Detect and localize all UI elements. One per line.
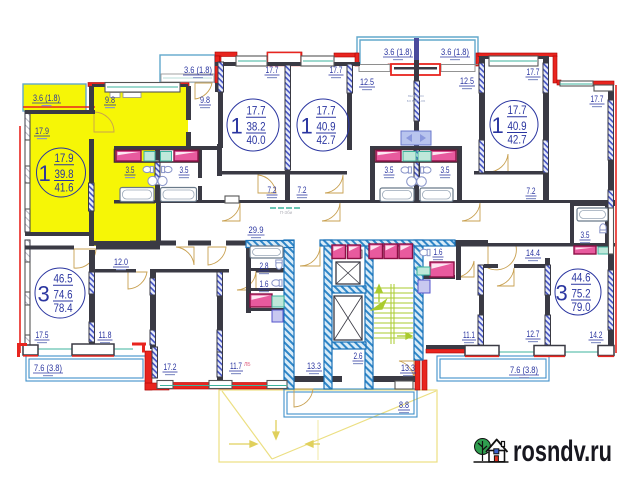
svg-text:9.8: 9.8 — [200, 95, 210, 105]
svg-text:1: 1 — [39, 161, 51, 186]
svg-text:2.6: 2.6 — [354, 351, 363, 361]
svg-text:1: 1 — [301, 114, 313, 139]
svg-text:17.7: 17.7 — [508, 105, 527, 117]
svg-text:3.5: 3.5 — [126, 165, 135, 175]
svg-text:74.6: 74.6 — [54, 290, 73, 302]
svg-text:ЛБ: ЛБ — [244, 362, 251, 368]
svg-text:29.9: 29.9 — [249, 225, 264, 235]
svg-text:8.8: 8.8 — [399, 400, 409, 410]
svg-text:7.6 (3.8): 7.6 (3.8) — [34, 363, 62, 373]
svg-text:3.5: 3.5 — [180, 165, 189, 175]
svg-text:1.6: 1.6 — [434, 247, 443, 257]
svg-text:42.7: 42.7 — [317, 135, 336, 147]
svg-text:79.0: 79.0 — [572, 302, 591, 314]
svg-text:13.3: 13.3 — [401, 363, 415, 373]
svg-text:12.5: 12.5 — [360, 77, 374, 87]
svg-text:2.8: 2.8 — [260, 261, 269, 271]
svg-text:3.6 (1.8): 3.6 (1.8) — [441, 47, 469, 57]
svg-text:12.5: 12.5 — [460, 76, 474, 86]
svg-text:17.2: 17.2 — [164, 362, 177, 372]
svg-text:78.4: 78.4 — [54, 303, 74, 315]
svg-text:40.9: 40.9 — [508, 121, 527, 133]
svg-text:7.2: 7.2 — [298, 185, 307, 195]
svg-text:7.2: 7.2 — [268, 185, 277, 195]
svg-text:ВЕНТБЛОК: ВЕНТБЛОК — [408, 94, 424, 98]
svg-text:3.6 (1.8): 3.6 (1.8) — [33, 93, 60, 103]
svg-text:12.7: 12.7 — [527, 329, 540, 339]
svg-text:17.7: 17.7 — [591, 94, 604, 104]
svg-text:42.7: 42.7 — [508, 135, 527, 147]
svg-text:3: 3 — [38, 282, 50, 307]
svg-text:12.0: 12.0 — [114, 257, 128, 267]
svg-text:11.1: 11.1 — [463, 330, 475, 340]
svg-text:3.5: 3.5 — [385, 165, 394, 175]
svg-text:1.6: 1.6 — [260, 279, 269, 289]
svg-text:7.2: 7.2 — [527, 186, 536, 196]
svg-text:40.0: 40.0 — [247, 135, 266, 147]
svg-text:17.7: 17.7 — [266, 65, 279, 75]
svg-text:3.5: 3.5 — [581, 230, 590, 240]
svg-text:9.8: 9.8 — [105, 95, 115, 105]
svg-text:11.8: 11.8 — [99, 330, 112, 340]
svg-text:3.6 (1.8): 3.6 (1.8) — [184, 65, 212, 75]
svg-text:75.2: 75.2 — [572, 289, 591, 301]
svg-text:13.3: 13.3 — [307, 361, 321, 371]
svg-text:40.9: 40.9 — [317, 122, 336, 134]
svg-text:14.2: 14.2 — [590, 330, 603, 340]
svg-text:3: 3 — [556, 281, 568, 306]
svg-text:46.5: 46.5 — [54, 274, 73, 286]
svg-text:39.8: 39.8 — [55, 169, 74, 181]
svg-text:38.2: 38.2 — [247, 122, 266, 134]
svg-text:17.7: 17.7 — [527, 67, 540, 77]
svg-text:rosndv.ru: rosndv.ru — [513, 435, 612, 468]
svg-text:1: 1 — [492, 113, 504, 138]
svg-text:44.6: 44.6 — [572, 273, 591, 285]
svg-text:11.7: 11.7 — [230, 361, 242, 371]
svg-text:П-3би: П-3би — [280, 210, 293, 215]
svg-text:7.6 (3.8): 7.6 (3.8) — [510, 365, 538, 375]
svg-text:1: 1 — [231, 114, 243, 139]
svg-text:17.7: 17.7 — [247, 106, 266, 118]
svg-text:14.4: 14.4 — [526, 248, 540, 258]
svg-text:17.5: 17.5 — [36, 330, 49, 340]
svg-text:17.7: 17.7 — [317, 106, 336, 118]
svg-text:17.9: 17.9 — [35, 126, 49, 136]
svg-text:41.6: 41.6 — [55, 183, 74, 195]
svg-text:17.9: 17.9 — [55, 153, 74, 165]
svg-text:3.6 (1.8): 3.6 (1.8) — [384, 47, 412, 57]
svg-text:БО В49-6-ОБ: БО В49-6-ОБ — [407, 99, 425, 103]
svg-text:3.5: 3.5 — [441, 165, 450, 175]
svg-text:17.7: 17.7 — [330, 65, 343, 75]
